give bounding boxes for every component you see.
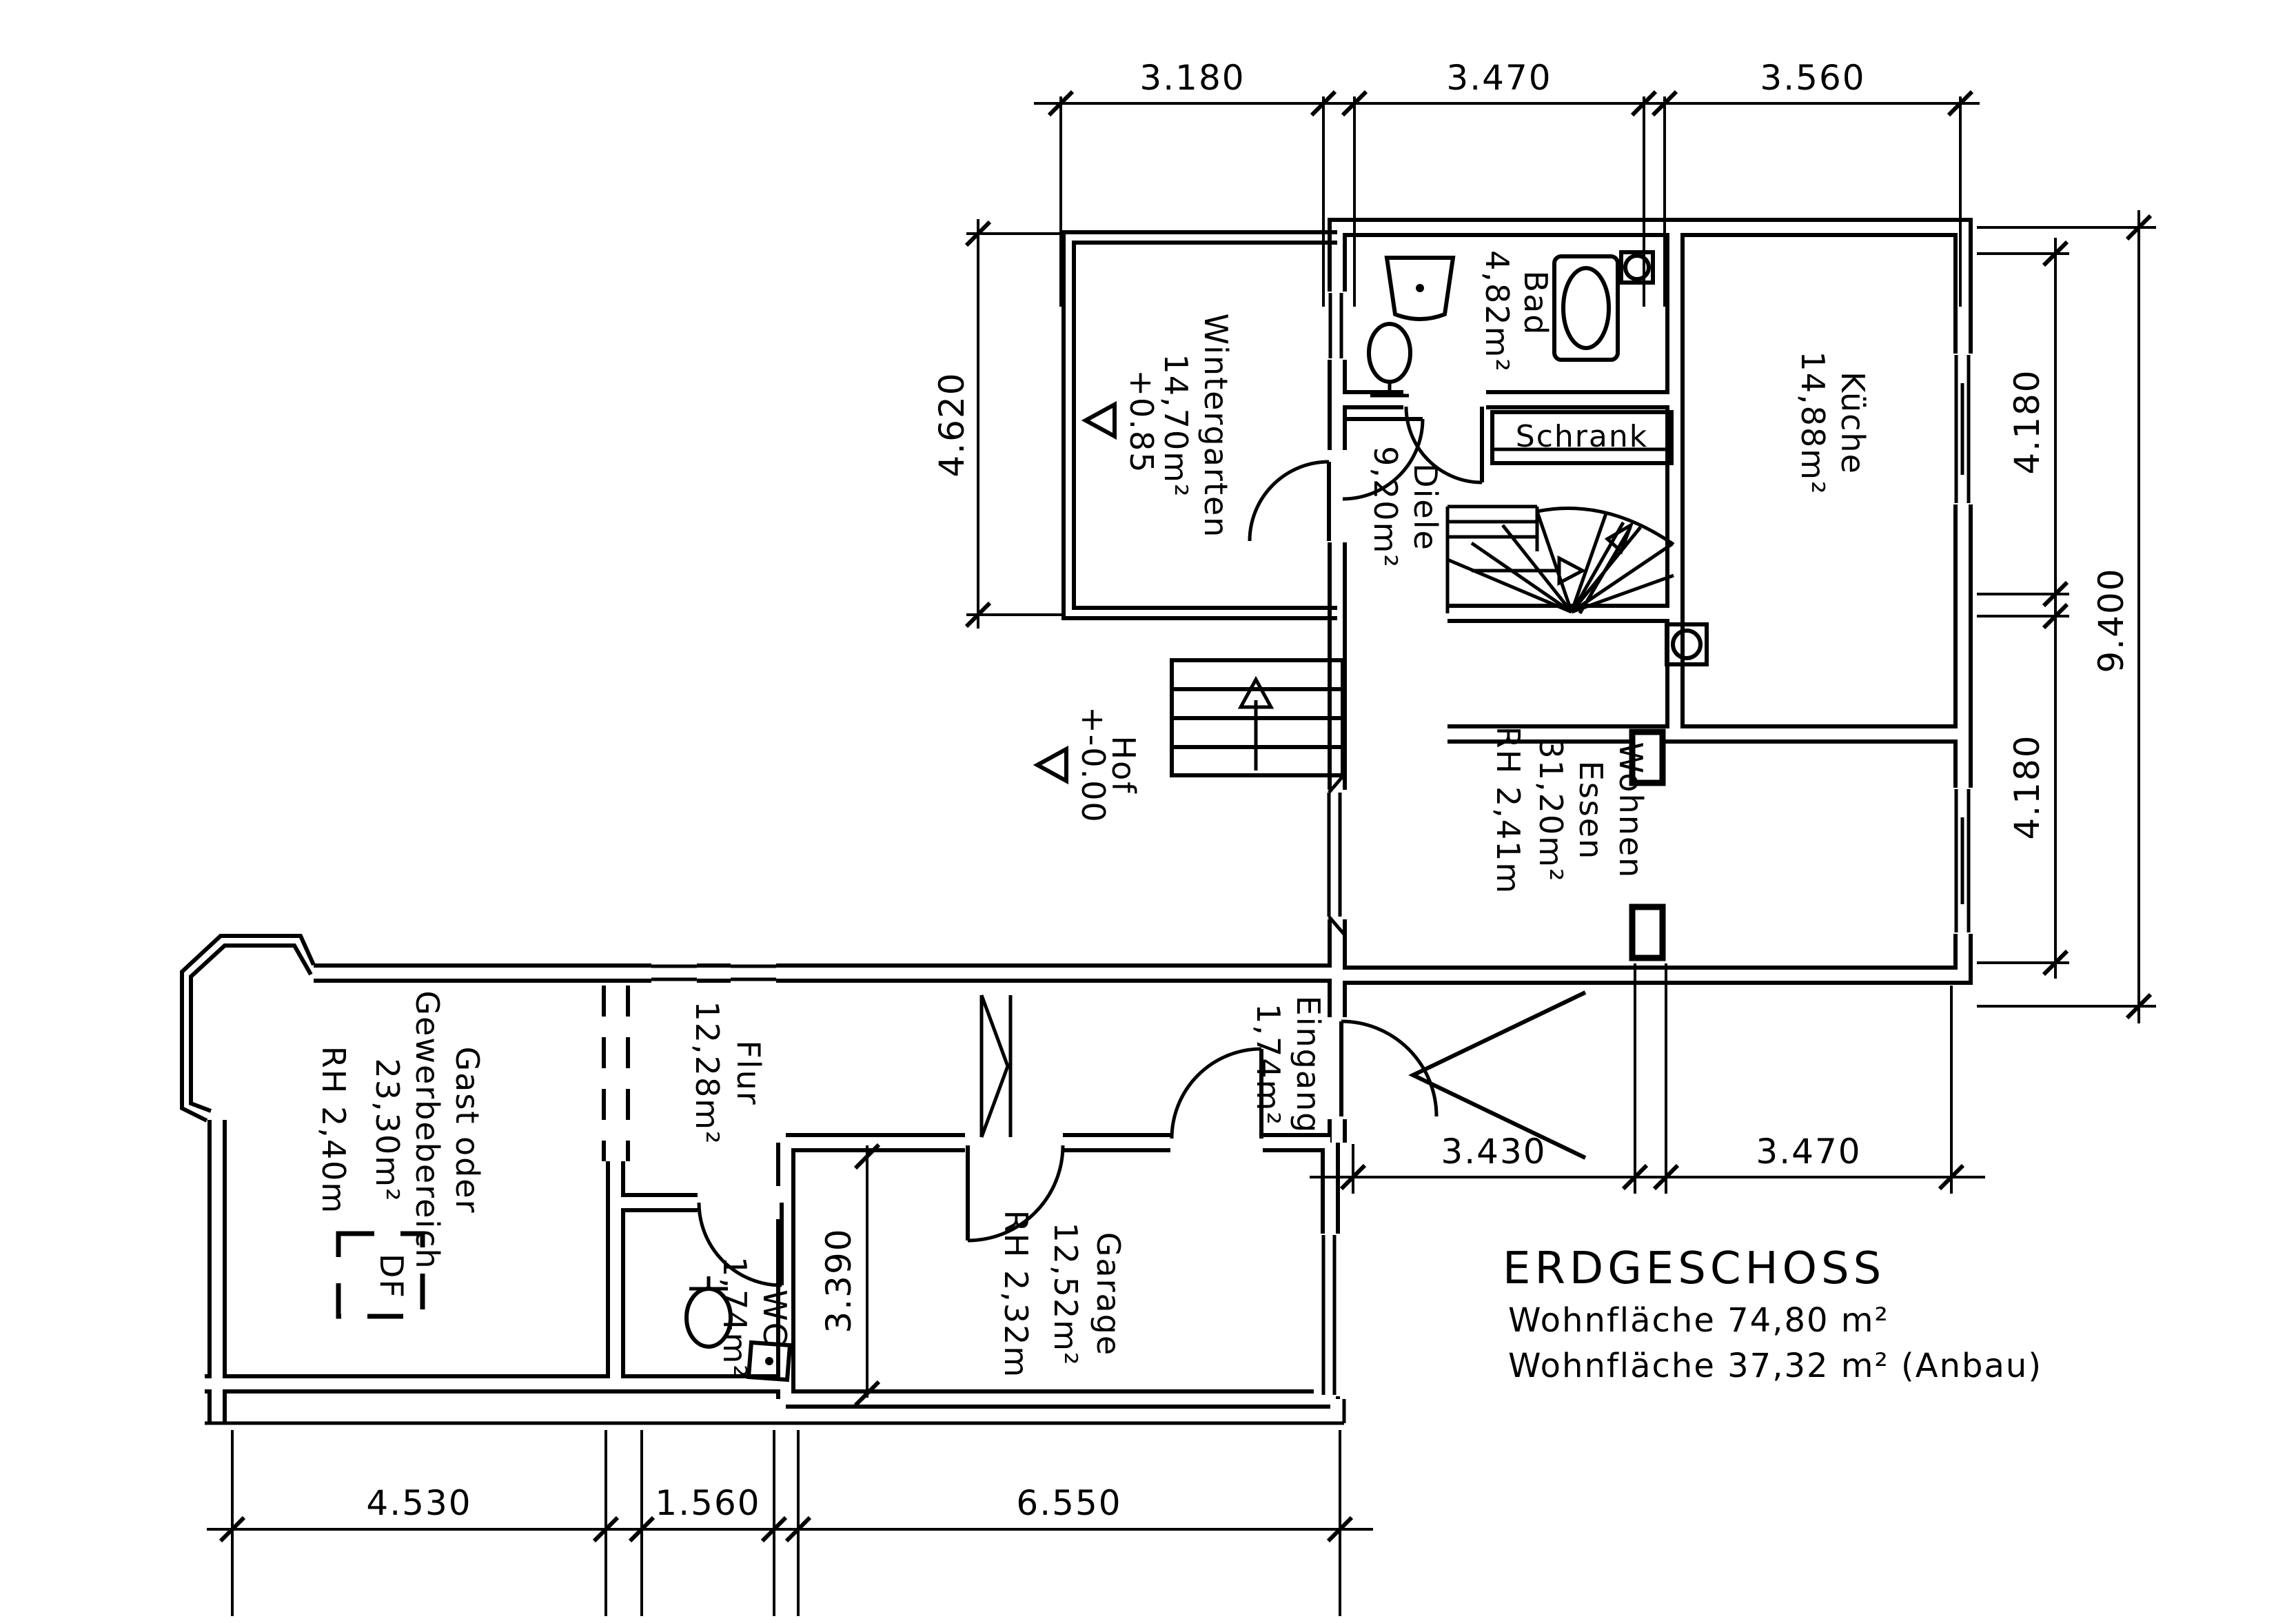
room-label-wintergarten: Wintergarten [1197, 314, 1235, 539]
room-label-gast-2: Gewerbebereich [409, 990, 446, 1269]
dim-bottom-3: 6.550 [1016, 1483, 1121, 1523]
room-area-wc: 1,74m² [716, 1256, 753, 1379]
dim-left: 4.620 [932, 371, 972, 477]
room-label-eingang: Eingang [1290, 996, 1327, 1134]
dim-top-3: 3.560 [1760, 58, 1865, 98]
dashed-partition [604, 986, 628, 1161]
room-label-diele: Diele [1407, 463, 1444, 551]
room-rh-gast: RH 2,40m [315, 1046, 352, 1214]
room-area-gast: 23,30m² [369, 1059, 406, 1203]
dim-middle-2: 3.470 [1756, 1132, 1861, 1172]
room-area-diele: 9,20m² [1367, 446, 1404, 569]
page-title: ERDGESCHOSS [1503, 1243, 1885, 1294]
shop-bay-window [182, 936, 314, 1121]
schrank-label: Schrank [1516, 419, 1648, 454]
living-area-line-1: Wohnfläche 74,80 m² [1508, 1301, 1889, 1340]
room-area-bad: 4,82m² [1479, 250, 1516, 373]
room-area-eingang: 1,74m² [1250, 1003, 1287, 1126]
room-rh-garage: RH 2,32m [997, 1210, 1035, 1378]
dim-top-2: 3.470 [1446, 58, 1552, 98]
area-level-hof: +-0.00 [1075, 706, 1112, 824]
room-label-gast-1: Gast oder [449, 1046, 486, 1214]
exterior-steps-icon [1172, 660, 1343, 775]
dim-right-inner-1: 4.180 [2007, 369, 2047, 474]
dim-right-inner-2: 4.180 [2007, 734, 2047, 839]
floor-plan-drawing: Wintergarten 14,70m² +0.85 Bad 4,82m² Di… [0, 0, 2296, 1623]
room-label-bad: Bad [1517, 271, 1554, 336]
room-label-garage: Garage [1090, 1232, 1127, 1356]
room-area-flur: 12,28m² [689, 1001, 726, 1145]
room-label-wc: WC [756, 1289, 793, 1346]
room-area-garage: 12,52m² [1047, 1223, 1084, 1367]
floor-plan-page: Wintergarten 14,70m² +0.85 Bad 4,82m² Di… [0, 0, 2296, 1623]
plan-text: Wintergarten 14,70m² +0.85 Bad 4,82m² Di… [315, 58, 2131, 1523]
dim-bottom-2: 1.560 [655, 1483, 760, 1523]
room-label-essen: Essen [1572, 761, 1609, 860]
df-label: DF [373, 1254, 410, 1299]
stairs-icon [1447, 507, 1674, 613]
room-label-kueche: Küche [1834, 371, 1871, 475]
room-label-flur: Flur [730, 1040, 767, 1105]
door-icons [699, 407, 1482, 1285]
room-level-wintergarten: +0.85 [1123, 370, 1160, 474]
dim-right-outer: 9.400 [2091, 567, 2131, 673]
toilet-icon [1369, 324, 1410, 382]
room-rh-wohnen: RH 2,41m [1490, 726, 1527, 895]
dim-garage-depth: 3.390 [819, 1227, 859, 1333]
room-area-wohnen: 31,20m² [1532, 739, 1569, 883]
room-area-kueche: 14,88m² [1794, 351, 1831, 496]
dim-bottom-1: 4.530 [366, 1483, 471, 1523]
dim-middle-1: 3.430 [1441, 1132, 1546, 1172]
dim-top-1: 3.180 [1139, 58, 1245, 98]
room-label-wohnen: Wohnen [1612, 742, 1649, 879]
room-area-wintergarten: 14,70m² [1157, 354, 1195, 498]
living-area-line-2: Wohnfläche 37,32 m² (Anbau) [1508, 1347, 2042, 1385]
